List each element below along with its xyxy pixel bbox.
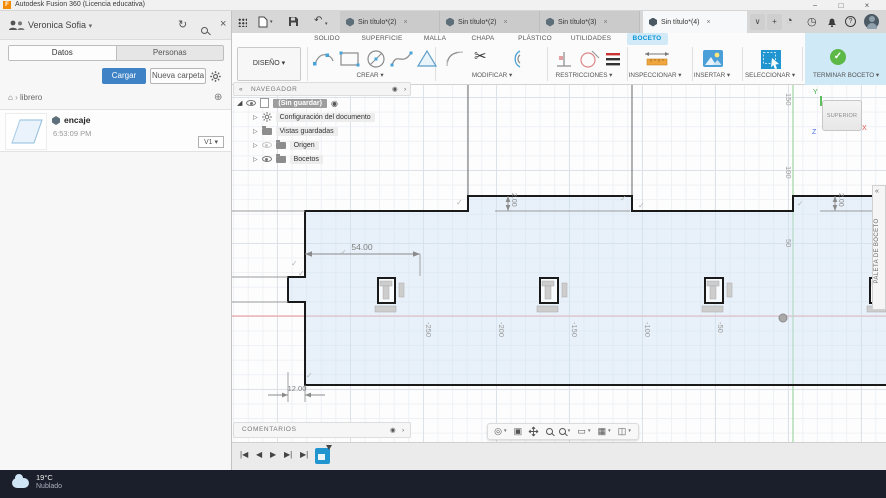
- viewports-icon[interactable]: ◫▼: [618, 427, 632, 436]
- window-title: Autodesk Fusion 360 (Licencia educativa): [15, 1, 145, 8]
- insert-image-icon[interactable]: [702, 49, 724, 68]
- design-menu-button[interactable]: DISEÑO ▾: [237, 47, 301, 81]
- env-tab-utilidades[interactable]: UTILIDADES: [571, 35, 611, 42]
- expand-icon[interactable]: ▷: [253, 142, 258, 149]
- close-tab-icon[interactable]: ×: [404, 19, 408, 26]
- navigator-root-row[interactable]: ◢ (Sin guardar) ◉: [233, 96, 411, 110]
- data-panel: Veronica Sofia ▾ ↻ × Datos Personas Carg…: [0, 11, 232, 470]
- view-cube[interactable]: Y SUPERIOR X Z: [812, 92, 868, 138]
- svg-text:✓: ✓: [298, 269, 305, 278]
- component-cube-icon: [52, 116, 60, 125]
- svg-text:-150: -150: [570, 322, 579, 337]
- modificar-group-label[interactable]: MODIFICAR ▾: [472, 72, 512, 79]
- document-cube-icon: [546, 18, 554, 27]
- svg-text:-200: -200: [497, 322, 506, 337]
- fit-icon[interactable]: ▼: [559, 428, 571, 435]
- expand-icon[interactable]: ▷: [253, 114, 258, 121]
- svg-text:-50: -50: [716, 322, 725, 333]
- new-tab-button[interactable]: +: [767, 14, 782, 30]
- terminar-boceto-label[interactable]: TERMINAR BOCETO ▾: [813, 72, 879, 79]
- search-icon[interactable]: [201, 27, 208, 34]
- refresh-icon[interactable]: ↻: [178, 18, 187, 31]
- play-button[interactable]: ▶: [270, 450, 276, 459]
- document-cube-icon: [649, 18, 657, 27]
- tangent-constraint-icon[interactable]: [578, 49, 600, 69]
- svg-text:-250: -250: [424, 322, 433, 337]
- equal-constraint-icon[interactable]: [604, 49, 622, 69]
- undo-caret-icon[interactable]: ▾: [325, 21, 328, 27]
- item-thumbnail: [5, 113, 47, 150]
- inspeccionar-group-label[interactable]: INSPECCIONAR ▾: [629, 72, 682, 79]
- svg-text:✓: ✓: [797, 199, 804, 208]
- close-tab-icon[interactable]: ×: [707, 19, 711, 26]
- collapse-icon[interactable]: «: [875, 188, 878, 195]
- svg-text:50: 50: [784, 239, 793, 247]
- doc-tab-2[interactable]: Sin título*(2) ×: [440, 11, 540, 33]
- display-settings-icon[interactable]: ▭▼: [577, 427, 591, 436]
- insertar-group-label[interactable]: INSERTAR ▾: [694, 72, 730, 79]
- close-tab-icon[interactable]: ×: [504, 19, 508, 26]
- navigator-row-doc-settings[interactable]: ▷ Configuración del documento: [233, 110, 411, 124]
- in-canvas-arrow-icon: ◢: [237, 99, 242, 107]
- undo-icon[interactable]: ↶: [314, 15, 322, 26]
- fillet-tool-icon[interactable]: [444, 49, 466, 69]
- go-to-start-button[interactable]: |◀: [240, 450, 248, 459]
- svg-text:-100: -100: [643, 322, 652, 337]
- close-button[interactable]: ×: [860, 1, 874, 10]
- spline-tool-icon[interactable]: [390, 49, 414, 69]
- y-axis-label: Y: [813, 89, 818, 96]
- svg-text:12.00: 12.00: [288, 384, 307, 393]
- panel-target-icon[interactable]: ◉: [390, 424, 396, 438]
- gear-icon: [262, 112, 272, 122]
- palette-title: PALETA DE BOCETO: [874, 197, 884, 305]
- settings-gear-icon[interactable]: [210, 71, 221, 82]
- recent-clock-icon[interactable]: ◷: [807, 15, 817, 28]
- x-axis-label: X: [862, 125, 867, 132]
- data-panel-header: Veronica Sofia ▾ ↻ ×: [0, 11, 231, 40]
- look-at-icon[interactable]: ▣: [514, 427, 523, 436]
- home-icon[interactable]: ⌂: [8, 93, 13, 102]
- crear-group-label[interactable]: CREAR ▾: [357, 72, 384, 79]
- perpendicular-constraint-icon[interactable]: [554, 49, 574, 69]
- avatar[interactable]: [864, 14, 879, 29]
- env-tab-boceto[interactable]: BOCETO: [633, 35, 662, 42]
- document-cube-icon: [346, 18, 354, 27]
- document-icon: [260, 98, 269, 108]
- root-document-label[interactable]: (Sin guardar): [273, 99, 327, 108]
- maximize-button[interactable]: □: [834, 1, 848, 10]
- folder-icon: [276, 156, 286, 163]
- navigation-toolbar: ◎▼ ▣ ▼ ▭▼ ▦▼ ◫▼: [487, 423, 639, 440]
- step-forward-button[interactable]: ▶|: [284, 450, 292, 459]
- timeline-sketch-feature[interactable]: [315, 448, 330, 464]
- item-timestamp: 6:53:09 PM: [53, 129, 91, 138]
- breadcrumb-separator: ›: [15, 93, 18, 102]
- svg-text:✓: ✓: [638, 201, 645, 210]
- sketch-palette-strip[interactable]: « PALETA DE BOCETO: [872, 185, 886, 310]
- line-tool-icon[interactable]: [312, 49, 336, 69]
- circle-tool-icon[interactable]: [364, 49, 388, 69]
- nueva-carpeta-button[interactable]: Nueva carpeta: [150, 68, 206, 84]
- document-tab-bar: ▾ ↶▾ ↷▾ Sin título*(2) × Sin título*(2) …: [232, 11, 886, 33]
- expand-icon[interactable]: ▷: [253, 128, 258, 135]
- comments-bar[interactable]: COMENTARIOS ◉ ›: [233, 422, 411, 438]
- tab-list-button[interactable]: ∨: [750, 14, 765, 30]
- restricciones-group-label[interactable]: RESTRICCIONES ▾: [556, 72, 613, 79]
- save-icon[interactable]: [288, 16, 299, 27]
- go-to-end-button[interactable]: ▶|: [300, 450, 308, 459]
- doc-tab-1[interactable]: Sin título*(2) ×: [340, 11, 440, 33]
- weather-condition[interactable]: Nublado: [36, 483, 62, 490]
- chevron-down-icon: ▾: [89, 23, 93, 30]
- notification-bell-icon[interactable]: [826, 16, 838, 28]
- grid-settings-icon[interactable]: ▦▼: [598, 427, 612, 436]
- zoom-icon[interactable]: [546, 428, 553, 435]
- navigator-header[interactable]: « NAVEGADOR ◉ ›: [233, 82, 411, 96]
- env-tab-malla[interactable]: MALLA: [424, 35, 446, 42]
- job-status-icon[interactable]: ◔: [786, 15, 793, 27]
- data-panel-tabs: Datos Personas: [8, 45, 224, 61]
- svg-text:2.00: 2.00: [510, 193, 517, 207]
- tab-datos[interactable]: Datos: [9, 46, 117, 60]
- z-axis-label: Z: [812, 129, 816, 136]
- visibility-eye-icon[interactable]: [262, 142, 272, 148]
- project-item-card[interactable]: encaje 6:53:09 PM V1 ▾: [0, 109, 231, 152]
- collapse-icon[interactable]: «: [239, 83, 242, 96]
- env-tab-superficie[interactable]: SUPERFICIE: [361, 35, 402, 42]
- step-back-button[interactable]: ◀: [256, 450, 262, 459]
- navigator-row-origin[interactable]: ▷ Origen: [233, 138, 411, 152]
- env-tab-plastico[interactable]: PLÁSTICO: [518, 35, 552, 42]
- weather-cloud-icon[interactable]: [12, 478, 29, 488]
- svg-text:✓: ✓: [306, 371, 313, 380]
- minimize-button[interactable]: −: [808, 1, 822, 10]
- version-dropdown[interactable]: V1 ▾: [198, 136, 224, 148]
- visibility-eye-icon[interactable]: [262, 156, 272, 162]
- item-name: encaje: [64, 115, 90, 125]
- windows-taskbar: 19°C Nublado ✂ W F 1 ∧ ☁ ESPLAA 19:1217/…: [0, 470, 886, 498]
- new-file-icon[interactable]: [258, 16, 268, 28]
- offset-tool-icon[interactable]: [500, 49, 524, 69]
- visibility-eye-icon[interactable]: [246, 100, 256, 106]
- doc-tab-3[interactable]: Sin título*(3) ×: [540, 11, 640, 33]
- title-bar: F Autodesk Fusion 360 (Licencia educativ…: [0, 0, 886, 11]
- close-panel-icon[interactable]: ×: [220, 18, 226, 30]
- fusion-logo-icon: F: [3, 1, 11, 9]
- orbit-icon[interactable]: ◎▼: [494, 427, 507, 436]
- document-cube-icon: [446, 18, 454, 27]
- user-menu[interactable]: Veronica Sofia ▾: [28, 20, 92, 30]
- file-caret-icon[interactable]: ▾: [270, 19, 273, 25]
- pan-icon[interactable]: [528, 426, 539, 437]
- navigator-row-sketches[interactable]: ▷ Bocetos: [233, 152, 411, 166]
- fusion360-window: F Autodesk Fusion 360 (Licencia educativ…: [0, 0, 886, 498]
- svg-text:✓: ✓: [291, 259, 298, 268]
- folder-icon: [262, 128, 272, 135]
- svg-text:2.00: 2.00: [837, 193, 844, 207]
- doc-tab-4-active[interactable]: Sin título*(4) ×: [643, 11, 747, 33]
- activate-radio-icon[interactable]: ◉: [331, 99, 338, 108]
- env-tab-solido[interactable]: SOLIDO: [314, 35, 340, 42]
- panel-more-icon[interactable]: ›: [402, 424, 405, 438]
- navigator-row-saved-views[interactable]: ▷ Vistas guardadas: [233, 124, 411, 138]
- close-tab-icon[interactable]: ×: [604, 19, 608, 26]
- dimension-12[interactable]: 12.00: [268, 384, 325, 397]
- timeline-bar: |◀ ◀ ▶ ▶| ▶|: [232, 442, 886, 470]
- seleccionar-group-label[interactable]: SELECCIONAR ▾: [745, 72, 795, 79]
- help-icon[interactable]: ?: [845, 16, 856, 27]
- svg-text:✓: ✓: [456, 198, 463, 207]
- share-globe-icon[interactable]: ⊕: [214, 92, 222, 103]
- breadcrumb: ⌂ › librero: [8, 93, 42, 102]
- polygon-tool-icon[interactable]: [416, 49, 438, 69]
- rectangle-tool-icon[interactable]: [338, 49, 362, 69]
- cargar-button[interactable]: Cargar: [102, 68, 146, 84]
- env-tab-chapa[interactable]: CHAPA: [472, 35, 495, 42]
- ribbon: SOLIDO SUPERFICIE MALLA CHAPA PLÁSTICO U…: [232, 33, 886, 85]
- panel-target-icon[interactable]: ◉: [392, 83, 398, 96]
- svg-text:100: 100: [784, 166, 793, 179]
- finish-sketch-check-icon[interactable]: ✓: [830, 49, 846, 65]
- svg-text:54.00: 54.00: [351, 242, 373, 252]
- tab-personas[interactable]: Personas: [117, 46, 224, 60]
- panel-more-icon[interactable]: ›: [404, 83, 407, 96]
- select-tool-icon[interactable]: [760, 49, 782, 70]
- expand-icon[interactable]: ▷: [253, 156, 258, 163]
- measure-tool-icon[interactable]: [644, 51, 670, 67]
- breadcrumb-librero[interactable]: librero: [20, 93, 42, 102]
- people-icon: [8, 20, 25, 31]
- trim-scissors-icon[interactable]: ✂: [474, 47, 487, 65]
- app-grid-icon[interactable]: [238, 18, 247, 27]
- svg-text:✓: ✓: [340, 248, 347, 257]
- weather-temp[interactable]: 19°C: [36, 473, 53, 482]
- view-cube-face[interactable]: SUPERIOR: [822, 100, 862, 131]
- folder-icon: [276, 142, 286, 149]
- origin-point[interactable]: [779, 314, 787, 322]
- navigator-panel: « NAVEGADOR ◉ › ◢ (Sin guardar) ◉ ▷ Conf…: [233, 82, 411, 166]
- svg-text:✓: ✓: [620, 194, 627, 203]
- svg-text:150: 150: [784, 93, 793, 106]
